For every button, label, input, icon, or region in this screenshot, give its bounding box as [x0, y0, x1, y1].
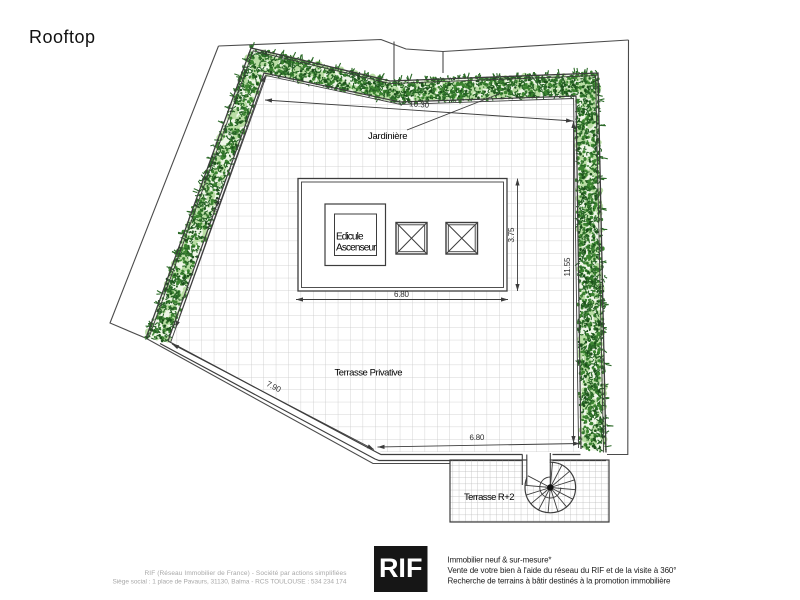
svg-text:6.80: 6.80: [469, 433, 485, 442]
svg-text:Jardinière: Jardinière: [368, 131, 408, 142]
svg-text:11.55: 11.55: [563, 257, 572, 277]
svg-text:Ascenseur: Ascenseur: [336, 243, 377, 254]
svg-text:10.30: 10.30: [409, 99, 430, 109]
svg-text:Immobilier neuf & sur-mesure*: Immobilier neuf & sur-mesure*: [448, 556, 552, 565]
svg-text:Terrasse Privative: Terrasse Privative: [335, 368, 403, 379]
svg-text:Recherche de terrains à bâtir: Recherche de terrains à bâtir destinés à…: [448, 577, 672, 586]
svg-text:Vente de votre bien à l'aide d: Vente de votre bien à l'aide du réseau d…: [448, 566, 677, 575]
svg-text:Edicule: Edicule: [336, 232, 364, 243]
svg-text:Terrasse R+2: Terrasse R+2: [464, 492, 515, 503]
svg-text:Rooftop: Rooftop: [29, 27, 95, 47]
svg-text:Siège social : 1 place de Pava: Siège social : 1 place de Pavaurs, 31130…: [113, 579, 347, 586]
svg-text:RIF (Réseau Immobilier de Fran: RIF (Réseau Immobilier de France) - Soci…: [145, 570, 348, 577]
svg-text:RIF: RIF: [379, 553, 423, 583]
svg-text:6.80: 6.80: [394, 290, 410, 299]
svg-text:3.75: 3.75: [507, 227, 516, 243]
